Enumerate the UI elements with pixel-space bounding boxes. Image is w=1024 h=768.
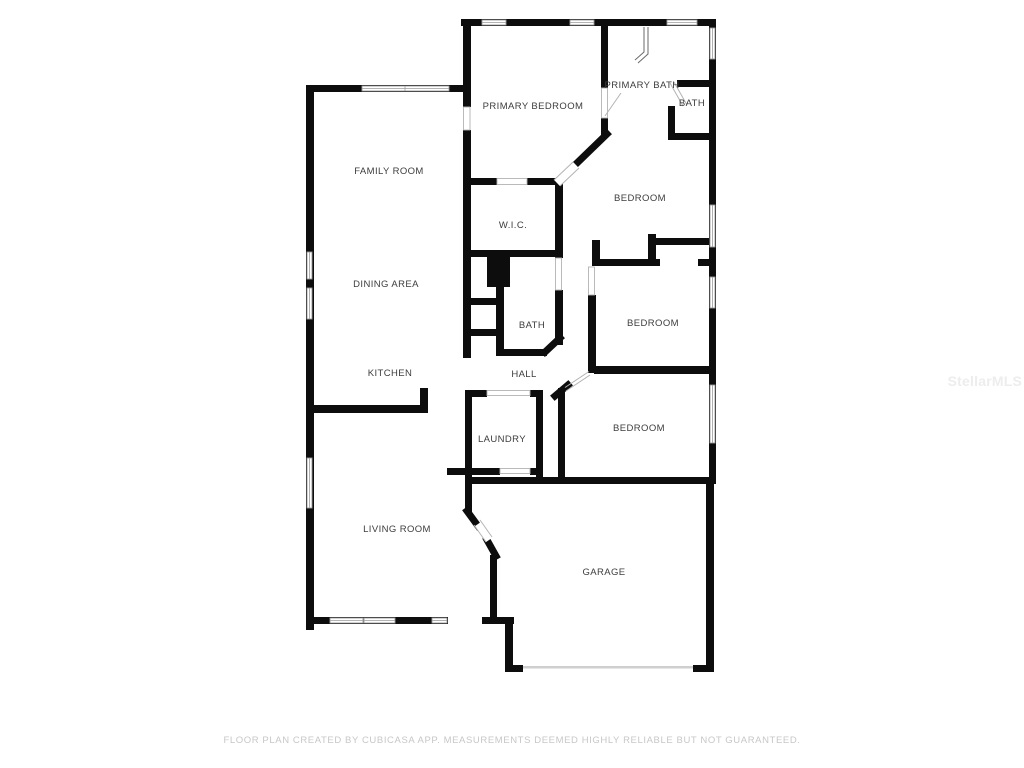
floor-plan-drawing: PRIMARY BEDROOM PRIMARY BATH BATH FAMILY… [0,0,1024,768]
laundry-door-bottom [500,469,530,474]
wic-door [497,179,527,185]
disclaimer-text: FLOOR PLAN CREATED BY CUBICASA APP. MEAS… [0,735,1024,746]
floor-plan-page: PRIMARY BEDROOM PRIMARY BATH BATH FAMILY… [0,0,1024,768]
room-label-wic: W.I.C. [499,220,527,231]
primary-bedroom-door [464,107,471,130]
room-label-bedroom-1: BEDROOM [614,193,666,204]
room-label-family-room: FAMILY ROOM [354,166,424,177]
room-label-primary-bath: PRIMARY BATH [604,80,679,91]
room-label-primary-bedroom: PRIMARY BEDROOM [483,101,584,112]
garage-door-line [523,666,693,669]
room-labels: PRIMARY BEDROOM PRIMARY BATH BATH FAMILY… [353,80,705,578]
room-label-dining-area: DINING AREA [353,279,419,290]
room-label-bath-middle: BATH [519,320,545,331]
room-label-bedroom-3: BEDROOM [613,423,665,434]
room-label-laundry: LAUNDRY [478,434,526,445]
room-label-bedroom-2: BEDROOM [627,318,679,329]
room-label-kitchen: KITCHEN [368,368,413,379]
stellar-mls-watermark: StellarMLS [948,373,1022,389]
bedroom2-door [589,267,595,295]
room-label-hall: HALL [511,369,536,380]
room-label-living-room: LIVING ROOM [363,524,431,535]
bedroom3-door [565,372,589,388]
shower-door-icon [635,27,648,63]
room-label-bath-top: BATH [679,98,705,109]
doors [464,82,694,669]
exterior-walls [306,19,716,672]
laundry-door-top [487,391,530,396]
hall-opening [556,258,562,290]
room-label-garage: GARAGE [582,567,625,578]
